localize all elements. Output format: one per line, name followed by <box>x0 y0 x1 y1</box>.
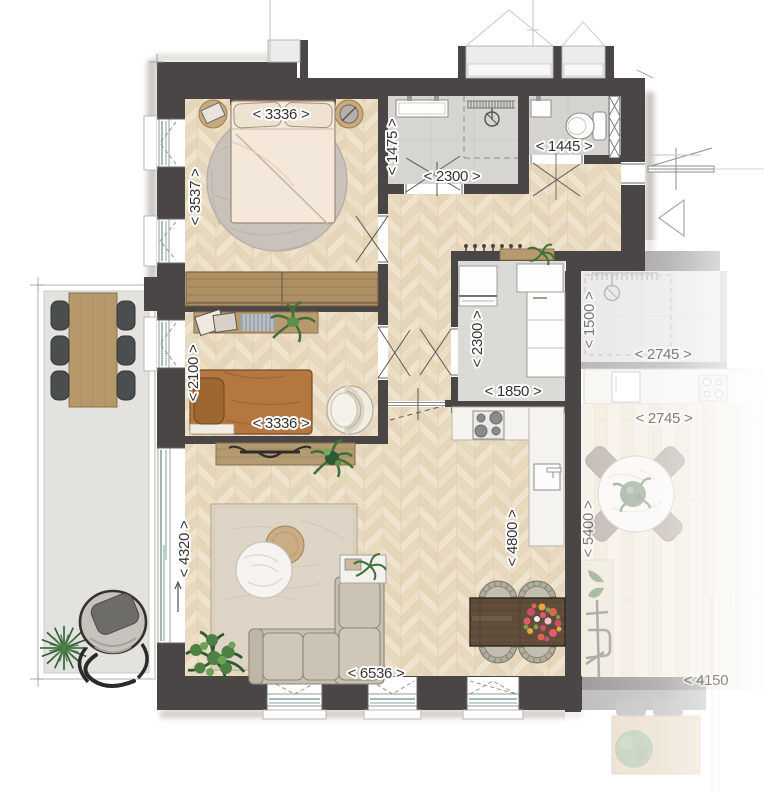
svg-text:< 1445 >: < 1445 > <box>536 138 593 155</box>
svg-text:< 6536 >: < 6536 > <box>348 665 405 682</box>
svg-text:< 2300 >: < 2300 > <box>424 168 481 185</box>
svg-text:< 2745 >: < 2745 > <box>636 410 693 427</box>
svg-text:< 2100 >: < 2100 > <box>185 344 202 401</box>
svg-text:< 4320 >: < 4320 > <box>176 520 193 577</box>
svg-text:< 2745 >: < 2745 > <box>635 346 692 363</box>
svg-text:< 4150: < 4150 <box>684 672 729 689</box>
svg-text:< 1500 >: < 1500 > <box>581 291 598 348</box>
svg-text:< 1850 >: < 1850 > <box>485 383 542 400</box>
svg-text:< 2300 >: < 2300 > <box>469 310 486 367</box>
svg-text:< 1475 >: < 1475 > <box>384 118 401 175</box>
svg-text:< 3537 >: < 3537 > <box>187 168 204 225</box>
svg-text:< 3336 >: < 3336 > <box>253 106 310 123</box>
svg-text:< 4800 >: < 4800 > <box>504 509 521 566</box>
svg-text:< 5400 >: < 5400 > <box>580 500 597 557</box>
svg-text:< 3336 >: < 3336 > <box>253 415 310 432</box>
